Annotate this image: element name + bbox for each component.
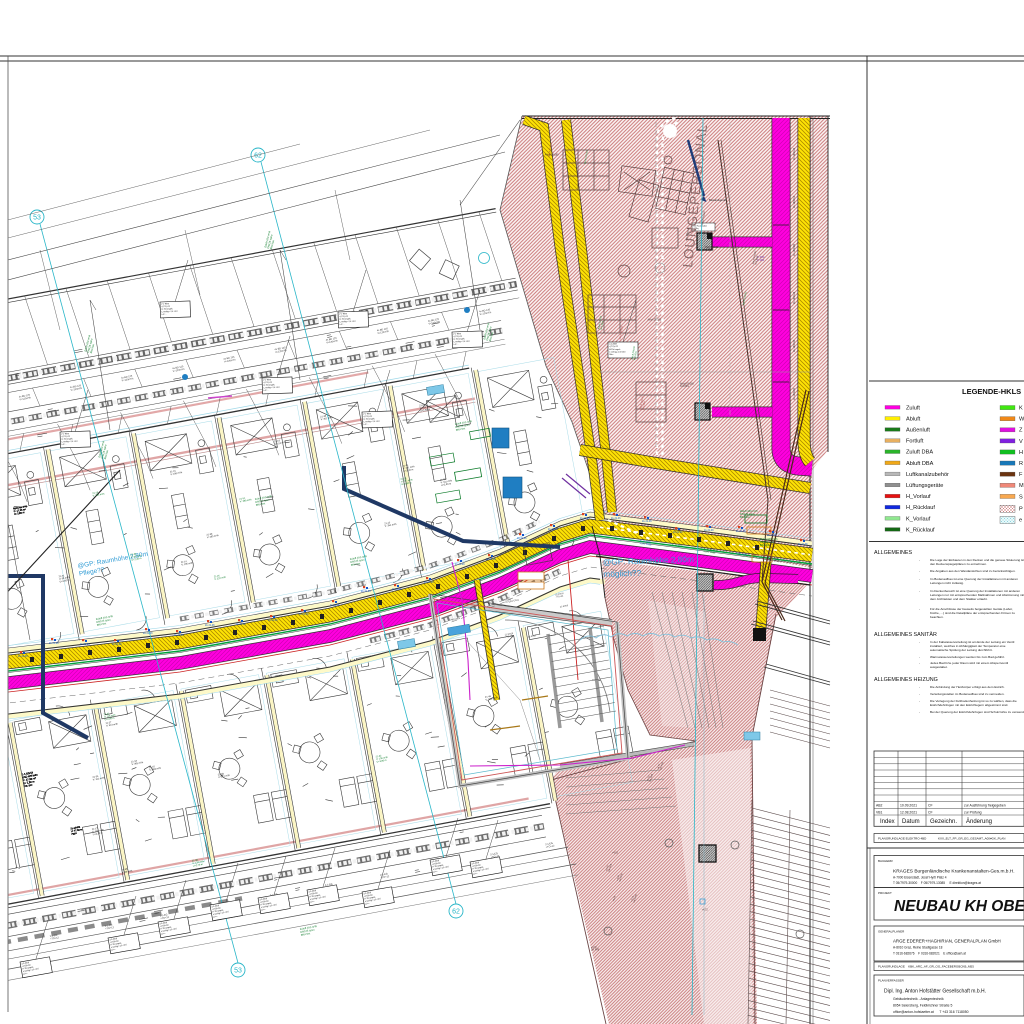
svg-text:den Deckenspiegelplänen zu ent: den Deckenspiegelplänen zu entnehmen. [930, 562, 987, 566]
svg-text:T 05/7979-30000 F 05/7979-1: T 05/7979-30000 F 05/7979-13085 E direkt… [893, 881, 981, 885]
svg-text:Zu 21-06: Zu 21-06 [704, 529, 714, 532]
svg-text:-: - [919, 655, 920, 659]
svg-text:Die Anbindung der Heizkörper e: Die Anbindung der Heizkörper erfolgt aus… [930, 685, 1005, 689]
svg-text:OK FFB: OK FFB [591, 950, 600, 952]
svg-text:GENERALPLANER: GENERALPLANER [878, 930, 905, 934]
svg-text:Zuluft DBA: Zuluft DBA [906, 450, 933, 456]
svg-text:L:verfüg= 2,6 l A:0: L:verfüg= 2,6 l A:0 [61, 440, 78, 444]
svg-text:Zu 21-06: Zu 21-06 [174, 634, 184, 637]
svg-text:LA= -: LA= - [364, 423, 369, 426]
svg-text:10.09.2021: 10.09.2021 [900, 804, 917, 808]
svg-text:Abluft DN160: Abluft DN160 [648, 319, 662, 322]
svg-text:Zu 21-06: Zu 21-06 [424, 581, 434, 584]
svg-text:L:verfüg= 2,6 l A:0: L:verfüg= 2,6 l A:0 [363, 420, 380, 424]
svg-text:L:verfüg= 2,6 l A:0: L:verfüg= 2,6 l A:0 [453, 340, 470, 344]
svg-text:Zu 21-06: Zu 21-06 [143, 632, 153, 635]
svg-text:-: - [919, 569, 920, 573]
svg-text:ausgestattet.: ausgestattet. [930, 665, 948, 669]
svg-text:F: F [1019, 472, 1023, 478]
svg-text:62: 62 [452, 908, 460, 915]
svg-text:K: K [1019, 406, 1023, 412]
svg-text:h=2,65m: h=2,65m [680, 386, 689, 388]
svg-text:PROJEKT: PROJEKT [878, 891, 892, 895]
svg-text:S: S [1019, 494, 1023, 500]
svg-text:Datum: Datum [902, 819, 920, 825]
svg-text:L:verfüg= 2,6 l A:0: L:verfüg= 2,6 l A:0 [263, 386, 280, 390]
svg-text:ARGE EDERER+HAGHIRIAN, GENERAL: ARGE EDERER+HAGHIRIAN, GENERALPLAN GmbH [893, 939, 1001, 944]
svg-text:PLANGRUNDLAGE ELEKTRO 4BD: PLANGRUNDLAGE ELEKTRO 4BD [878, 837, 927, 841]
svg-text:VB1: VB1 [876, 811, 883, 815]
svg-text:Gezeichn.: Gezeichn. [930, 819, 957, 825]
svg-text:Zu 21-06: Zu 21-06 [642, 520, 652, 523]
svg-text:53: 53 [33, 214, 41, 221]
svg-text:K_Rücklauf: K_Rücklauf [906, 527, 935, 533]
svg-text:R: R [1019, 461, 1023, 467]
svg-text:h=2,65m: h=2,65m [705, 250, 714, 252]
svg-text:zur Ausführung freigegeben: zur Ausführung freigegeben [964, 804, 1006, 808]
svg-text:-: - [919, 558, 920, 562]
svg-text:Zu 21-06: Zu 21-06 [49, 642, 59, 645]
svg-text:L:verfüg= 2,6 l A:0: L:verfüg= 2,6 l A:0 [609, 350, 626, 353]
svg-text:H_Vorlauf: H_Vorlauf [906, 494, 931, 500]
svg-text:zur Prüfung: zur Prüfung [964, 811, 982, 815]
svg-text:Zu 21-06: Zu 21-06 [236, 623, 246, 626]
svg-text:+4,72: +4,72 [702, 910, 709, 912]
svg-text:office@anton-hofstaetter.at: office@anton-hofstaetter.at T +43 316 71… [893, 1010, 969, 1014]
svg-text:Fortluft: Fortluft [906, 439, 924, 445]
svg-text:Zu 180/212: Zu 180/212 [793, 195, 796, 208]
svg-text:A-8010 Graz, Reine Stadtgasse: A-8010 Graz, Reine Stadtgasse 18 [893, 946, 943, 950]
svg-text:H: H [1019, 450, 1023, 456]
svg-text:-: - [919, 710, 920, 714]
svg-text:Zuluft: Zuluft [906, 405, 920, 411]
svg-text:-: - [919, 699, 920, 703]
svg-text:-: - [919, 640, 920, 644]
svg-text:Abluft DN160: Abluft DN160 [705, 246, 719, 249]
svg-text:LEGENDE-HKLS: LEGENDE-HKLS [962, 387, 1021, 396]
svg-text:dem Architekten und dem Statik: dem Architekten und dem Statiker erlaubt… [930, 597, 988, 601]
svg-text:Gebäudetechnik - Anlagentechni: Gebäudetechnik - Anlagentechnik [893, 997, 944, 1001]
svg-text:Zu 21-06: Zu 21-06 [392, 588, 402, 591]
svg-text:beachten.: beachten. [930, 615, 944, 619]
svg-text:Zu 21-06: Zu 21-06 [112, 643, 122, 646]
svg-text:Warmwasserverteilungen werden: Warmwasserverteilungen werden bis zum Ba… [930, 655, 1005, 659]
svg-text:AB2: AB2 [876, 804, 883, 808]
svg-text:Zu 21-06: Zu 21-06 [673, 531, 683, 534]
svg-text:Abluft DBA: Abluft DBA [906, 461, 934, 467]
svg-text:LA= -: LA= - [340, 323, 345, 326]
svg-text:Zu 21-06: Zu 21-06 [580, 517, 590, 520]
svg-text:Zu 180/128: Zu 180/128 [793, 291, 796, 304]
svg-text:Index: Index [880, 819, 895, 825]
svg-text:PLANGRUNDLAGE KBK_ARC_AF_GR: PLANGRUNDLAGE KBK_ARC_AF_GR_OG_FACEBERGB… [878, 965, 974, 969]
svg-text:Bei der Querung der Estrichdeh: Bei der Querung der Estrichdehnfugen sin… [930, 710, 1024, 714]
svg-text:Z: Z [1019, 428, 1023, 434]
svg-text:ALLGEMEINES HEIZUNG: ALLGEMEINES HEIZUNG [874, 677, 938, 683]
svg-text:Bestandsgerät: Bestandsgerät [709, 198, 726, 202]
svg-text:-: - [919, 692, 920, 696]
svg-text:K_Vorlauf: K_Vorlauf [906, 516, 931, 522]
svg-text:möglich??: möglich?? [603, 568, 642, 579]
svg-text:Änderung: Änderung [966, 818, 992, 825]
svg-text:8054 Seiersberg, Feldkirchner: 8054 Seiersberg, Feldkirchner Straße 5 [893, 1004, 952, 1008]
svg-text:Luftkanalzubehör: Luftkanalzubehör [906, 472, 949, 478]
svg-text:Zu 21-06: Zu 21-06 [299, 613, 309, 616]
svg-text:Zu 180/204: Zu 180/204 [793, 387, 796, 400]
svg-text:Abluft DN160: Abluft DN160 [545, 153, 559, 156]
svg-text:Abluft: Abluft [906, 416, 921, 422]
svg-text:L:verfüg= 2,6 l A:0: L:verfüg= 2,6 l A:0 [339, 320, 356, 324]
svg-text:Außenluft: Außenluft [906, 428, 930, 434]
svg-text:-: - [919, 685, 920, 689]
svg-text:LA= -: LA= - [62, 443, 67, 446]
svg-text:-: - [919, 577, 920, 581]
svg-text:-: - [919, 589, 920, 593]
svg-text:P: P [1019, 506, 1023, 512]
svg-text:LA= -: LA= - [609, 353, 614, 356]
svg-text:automatische Spülung der Leitu: automatische Spülung der Leitung durchfü… [930, 648, 993, 652]
svg-text:+4,03: +4,03 [612, 852, 619, 854]
svg-text:e: e [1019, 518, 1022, 524]
svg-text:T 0316-682676 F 0316-682021: T 0316-682676 F 0316-682021 E office@aeh… [893, 952, 966, 956]
svg-text:Verteilungsstellen im Bodenauf: Verteilungsstellen im Bodenaufbau sind z… [930, 692, 1005, 696]
svg-text:ALLGEMEINES SANITÄR: ALLGEMEINES SANITÄR [874, 631, 937, 638]
svg-text:-: - [919, 661, 920, 665]
svg-text:Abluft DN160: Abluft DN160 [680, 382, 694, 385]
svg-text:Zu 21-06: Zu 21-06 [361, 590, 371, 593]
svg-text:H_Rücklauf: H_Rücklauf [906, 505, 935, 511]
svg-text:BKA frei: BKA frei [760, 543, 770, 547]
svg-text:PLANVERFASSER: PLANVERFASSER [878, 979, 905, 983]
svg-text:Zu 180/103: Zu 180/103 [793, 339, 796, 352]
svg-text:Zu 21-06: Zu 21-06 [268, 619, 278, 622]
svg-text:LA= -: LA= - [162, 313, 167, 316]
svg-text:Zu 21-06: Zu 21-06 [18, 655, 28, 658]
svg-text:Zu 21-06: Zu 21-06 [486, 558, 496, 561]
svg-text:62: 62 [254, 152, 262, 159]
svg-text:Zu 21-06: Zu 21-06 [548, 528, 558, 531]
svg-text:Leitungen nicht zulässig.: Leitungen nicht zulässig. [930, 581, 964, 585]
svg-text:V: V [1019, 439, 1023, 445]
svg-text:CF: CF [928, 804, 933, 808]
svg-text:M: M [1019, 483, 1024, 489]
svg-text:Zu 21-06: Zu 21-06 [80, 643, 90, 646]
svg-text:Zu 21-06: Zu 21-06 [455, 563, 465, 566]
svg-text:Zu 21-06: Zu 21-06 [611, 517, 621, 520]
svg-text:BAUHERR: BAUHERR [878, 859, 894, 863]
svg-text:Zu 21-06: Zu 21-06 [205, 624, 215, 627]
svg-text:CF: CF [928, 811, 933, 815]
svg-text:LA= -: LA= - [264, 389, 269, 392]
svg-text:12.08.2021: 12.08.2021 [900, 811, 917, 815]
svg-text:KRAGES Burgenländische Kranken: KRAGES Burgenländische Krankenanstalten-… [893, 869, 1015, 875]
svg-text:Zu 21-06: Zu 21-06 [517, 537, 527, 540]
svg-text:Zu 180/302: Zu 180/302 [793, 243, 796, 256]
svg-text:Die Angaben aus den Wandansich: Die Angaben aus den Wandansichten sind z… [930, 569, 1016, 573]
svg-text:53: 53 [234, 967, 242, 974]
svg-text:NEUBAU KH OBERWART: NEUBAU KH OBERWART [894, 898, 1024, 915]
svg-text:-: - [919, 607, 920, 611]
svg-text:A-7000 Eisenstadt, Josef Hyrtl: A-7000 Eisenstadt, Josef Hyrtl Platz 4 [893, 876, 947, 880]
svg-text:Zu 180/123: Zu 180/123 [793, 147, 796, 160]
svg-text:Lüftungsgeräte: Lüftungsgeräte [906, 483, 943, 489]
svg-text:W: W [1019, 417, 1024, 423]
svg-text:Zu 21-06: Zu 21-06 [767, 534, 777, 537]
svg-text:Estrichdehnfugen mit den Estri: Estrichdehnfugen mit den Estrichlegern a… [930, 703, 1008, 707]
svg-text:Zu 21-06: Zu 21-06 [330, 604, 340, 607]
svg-text:KXX_ELT_FP_GR_EG_GESAMT_A00#GK: KXX_ELT_FP_GR_EG_GESAMT_A00#GK_PLAN [938, 837, 1005, 841]
svg-text:LA= -: LA= - [454, 343, 459, 346]
svg-text:ALLGEMEINES: ALLGEMEINES [874, 550, 912, 556]
svg-text:Dipl. Ing. Anton Hofstätter Ge: Dipl. Ing. Anton Hofstätter Gesellschaft… [884, 989, 986, 995]
svg-text:Zu 21-06: Zu 21-06 [798, 543, 808, 546]
svg-text:Zu 21-06: Zu 21-06 [736, 530, 746, 533]
svg-text:L:verfüg= 2,6 l A:0: L:verfüg= 2,6 l A:0 [161, 310, 178, 314]
